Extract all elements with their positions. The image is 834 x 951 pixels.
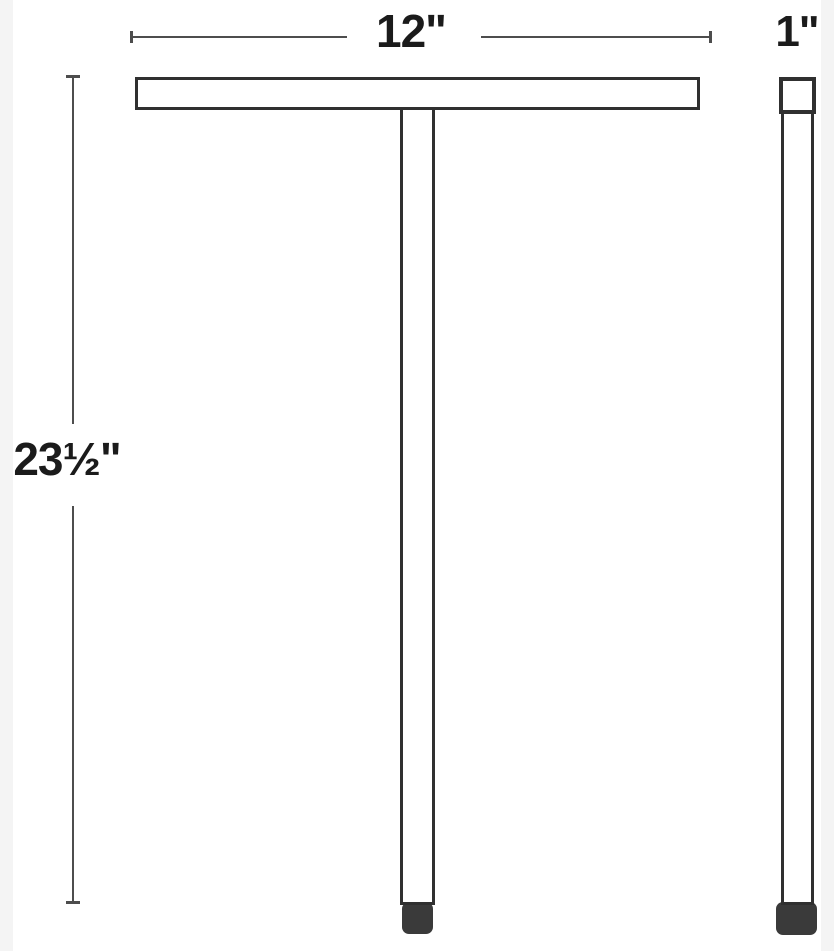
width-dim-line-right xyxy=(481,36,711,38)
side-view-ground-stake-cap xyxy=(776,902,817,935)
page-margin-right xyxy=(821,0,834,951)
dimension-diagram: 12" 1" 23½" xyxy=(0,0,834,951)
height-dim-line-top xyxy=(72,77,74,424)
depth-dimension-label: 1" xyxy=(764,10,830,54)
width-dimension-label: 12" xyxy=(352,8,470,54)
front-view-ground-stake-cap xyxy=(402,902,433,934)
front-view-stem xyxy=(400,110,435,905)
front-view-top-bar xyxy=(135,77,700,110)
side-view-top-cap xyxy=(779,77,816,114)
side-view-stem xyxy=(781,114,814,905)
height-dim-tick-bottom xyxy=(66,901,80,904)
width-dim-tick-right xyxy=(709,31,712,43)
width-dim-line-left xyxy=(132,36,347,38)
height-dimension-label: 23½" xyxy=(6,436,128,482)
height-dim-line-bottom xyxy=(72,506,74,903)
